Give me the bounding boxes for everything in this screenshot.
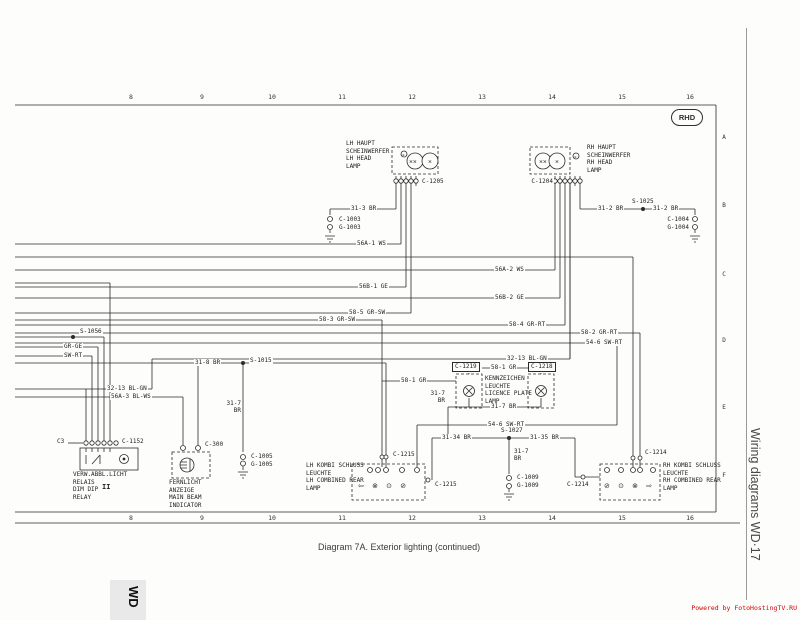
wire-label: 32-13 BL-GN <box>106 385 148 392</box>
svg-text:×: × <box>574 156 577 161</box>
ruler-bottom-16: 16 <box>683 514 697 522</box>
splice-label: S-1015 <box>249 357 273 364</box>
wire-label: 31-35 BR <box>529 434 560 441</box>
connector-label-c1215-side: C-1215 <box>434 481 458 488</box>
ruler-top-16: 16 <box>683 93 697 101</box>
connector-label: G-1003 <box>338 224 362 231</box>
wire-label: 54-6 SW-RT <box>585 339 623 346</box>
wire-label: 58-4 GR-RT <box>508 321 546 328</box>
ruler-bottom-8: 8 <box>124 514 138 522</box>
ruler-bottom-12: 12 <box>405 514 419 522</box>
wire-label: 31-8 BR <box>194 359 221 366</box>
connector-label-c1204: C-1204 <box>524 178 554 185</box>
ruler-top-11: 11 <box>335 93 349 101</box>
grid-row-a: A <box>720 134 728 141</box>
watermark: Powered by FotoHostingTV.RU <box>640 604 797 612</box>
rhd-badge: RHD <box>671 109 703 126</box>
wire-label: 31-7 BR <box>513 448 529 462</box>
grid-row-b: B <box>720 202 728 209</box>
ruler-bottom-15: 15 <box>615 514 629 522</box>
wire-label: 58-1 GR <box>400 377 427 384</box>
connector-label: C-1005 <box>250 453 274 460</box>
wire-label: 58-1 GR <box>490 364 517 371</box>
wiring-lines: ××× ××× ×× <box>0 0 800 620</box>
grid-row-e: E <box>720 404 728 411</box>
wire-label: 58-5 GR-SW <box>348 309 386 316</box>
rh-headlamp-label: RH HAUPT SCHEINWERFER RH HEAD LAMP <box>587 144 630 174</box>
ruler-bottom-13: 13 <box>475 514 489 522</box>
connector-label-c3: C3 <box>56 438 65 445</box>
sidebar-divider <box>746 28 747 600</box>
ruler-top-10: 10 <box>265 93 279 101</box>
connector-label: C-1009 <box>516 474 540 481</box>
grid-row-c: C <box>720 271 728 278</box>
connector-label: C-1004 <box>644 216 690 223</box>
connector-label-c1214-side: C-1214 <box>566 481 590 488</box>
wire-label: 31-7 BR <box>224 400 242 414</box>
connector-label-c1152: C-1152 <box>121 438 145 445</box>
connector-label-c1215-top: C-1215 <box>392 451 416 458</box>
connector-label: C-1003 <box>338 216 362 223</box>
wire-label: 31-3 BR <box>350 205 377 212</box>
connector-label-c1205: C-1205 <box>421 178 445 185</box>
ruler-top-12: 12 <box>405 93 419 101</box>
wire-label: 31-7 BR <box>426 390 446 404</box>
connector-label: G-1009 <box>516 482 540 489</box>
rh-rear-lamp-label: RH KOMBI SCHLUSS LEUCHTE RH COMBINED REA… <box>663 462 721 492</box>
ruler-bottom-9: 9 <box>195 514 209 522</box>
connector-label-c300: C-300 <box>204 441 224 448</box>
wire-label: 58-2 GR-RT <box>580 329 618 336</box>
svg-text:×: × <box>555 158 559 166</box>
wire-label: 31-34 BR <box>441 434 472 441</box>
wire-label: 56A-1 WS <box>356 240 387 247</box>
ruler-bottom-14: 14 <box>545 514 559 522</box>
ruler-top-8: 8 <box>124 93 138 101</box>
wire-label: 56B-1 GE <box>358 283 389 290</box>
grid-row-f: F <box>720 472 728 479</box>
wire-label: 56B-2 GE <box>494 294 525 301</box>
wire-label: SW-RT <box>63 352 83 359</box>
main-beam-indicator-label: FERNLICHT ANZEIGE MAIN BEAM INDICATOR <box>169 479 202 509</box>
wire-label: 56A-3 BL-WS <box>110 393 152 400</box>
connector-label-c1219: C-1219 <box>452 362 480 372</box>
connector-label: G-1004 <box>644 224 690 231</box>
wire-label: 32-13 BL-GN <box>506 355 548 362</box>
dim-dip-relay-label: VERW.ABBL.LICHT RELAIS DIM DIP RELAY <box>73 471 127 501</box>
lh-rear-lamp-symbols-icon: ⇦ ⊗ ⊙ ⊘ <box>358 482 409 490</box>
wiring-diagram-page: ××× ××× ×× <box>0 0 800 620</box>
corner-tab: WD <box>126 586 141 608</box>
splice-label: S-1056 <box>79 328 103 335</box>
splice-label: S-1025 <box>631 198 655 205</box>
connector-label-c1218: C-1218 <box>528 362 556 372</box>
ruler-bottom-11: 11 <box>335 514 349 522</box>
wire-label: 56A-2 WS <box>494 266 525 273</box>
relay-mark: II <box>102 483 110 491</box>
lh-rear-lamp-label: LH KOMBI SCHLUSS LEUCHTE LH COMBINED REA… <box>306 462 364 492</box>
ruler-top-15: 15 <box>615 93 629 101</box>
connector-label: G-1005 <box>250 461 274 468</box>
ruler-bottom-10: 10 <box>265 514 279 522</box>
licence-plate-lamp-label: KENNZEICHEN LEUCHTE LICENCE PLATE LAMP <box>485 375 532 405</box>
grid-row-d: D <box>720 337 728 344</box>
wire-label: 58-3 GR-SW <box>318 316 356 323</box>
svg-text:×: × <box>428 158 432 166</box>
wire-label: 31-2 BR <box>652 205 679 212</box>
rh-rear-lamp-symbols-icon: ⊘ ⊙ ⊗ ⇨ <box>604 482 655 490</box>
splice-label: S-1027 <box>500 427 524 434</box>
svg-text:××: ×× <box>409 158 417 166</box>
ruler-top-9: 9 <box>195 93 209 101</box>
svg-text:×: × <box>402 154 405 159</box>
ruler-top-13: 13 <box>475 93 489 101</box>
wire-label: GR-GE <box>63 343 83 350</box>
diagram-caption: Diagram 7A. Exterior lighting (continued… <box>318 542 480 552</box>
svg-text:××: ×× <box>539 158 547 166</box>
wire-label: 31-7 BR <box>490 403 517 410</box>
connector-label-c1214-top: C-1214 <box>644 449 668 456</box>
ruler-top-14: 14 <box>545 93 559 101</box>
wire-label: 31-2 BR <box>597 205 624 212</box>
lh-headlamp-label: LH HAUPT SCHEINWERFER LH HEAD LAMP <box>346 140 389 170</box>
sidebar-title: Wiring diagrams WD·17 <box>748 428 762 561</box>
